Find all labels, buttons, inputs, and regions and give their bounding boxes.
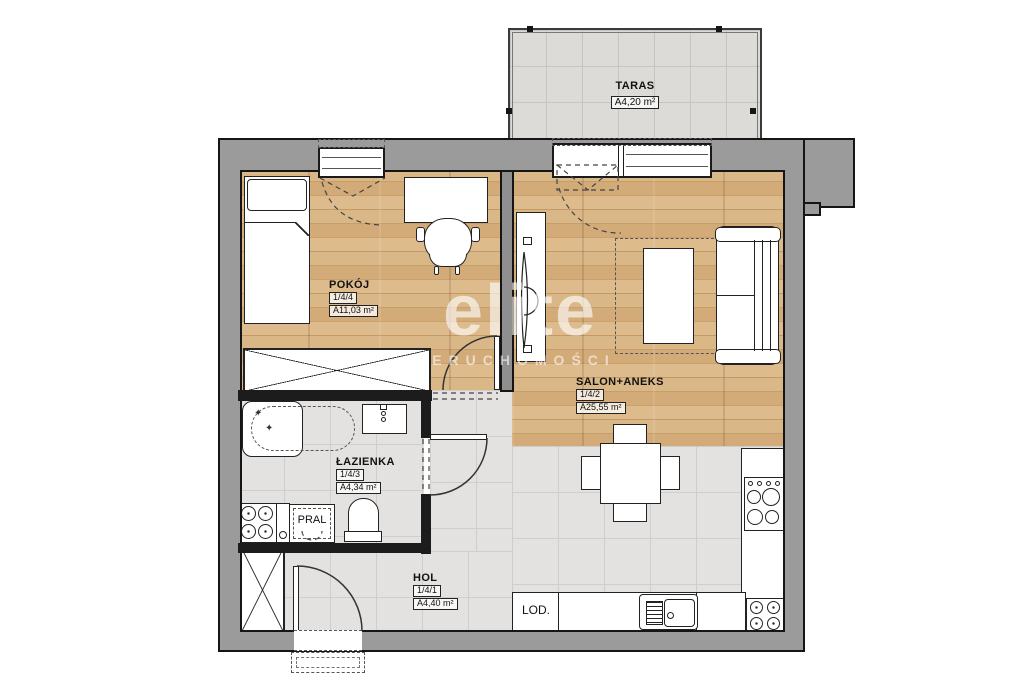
balcony-door-window [552,143,712,178]
pokoj-name: POKÓJ [329,279,378,291]
wall-bathroom-right-upper [421,390,431,438]
salon-unit: 1/4/2 [576,389,604,401]
pokoj-area: A11,03 m² [329,305,378,317]
wall-extension-top-right [801,140,853,206]
balcony-door-sill [552,138,712,146]
railing-post [527,26,533,32]
pokoj-window [318,147,385,178]
pokoj-window-sill [318,139,385,148]
terrace-label: TARAS A4,20 m² [508,80,762,110]
entrance-opening [294,630,362,651]
salon-label: SALON+ANEKS 1/4/2 A25,55 m² [576,376,664,414]
lazienka-unit: 1/4/3 [336,469,364,481]
hol-name: HOL [413,572,458,584]
lazienka-area: A4,34 m² [336,482,381,494]
hol-area: A4,40 m² [413,598,458,610]
lazienka-label: ŁAZIENKA 1/4/3 A4,34 m² [336,456,395,494]
salon-name: SALON+ANEKS [576,376,664,388]
wall-bathroom-bottom [238,543,431,553]
floor-plan: TARAS A4,20 m² [0,0,1024,692]
wall-pokoj-bottom [238,390,432,401]
hol-unit: 1/4/1 [413,585,441,597]
pokoj-unit: 1/4/4 [329,292,357,304]
lazienka-name: ŁAZIENKA [336,456,395,468]
pokoj-door-leaf [494,336,500,390]
terrace-area: A4,20 m² [611,96,660,109]
salon-area: A25,55 m² [576,402,626,414]
wall-pokoj-salon [500,170,514,392]
bathroom-door-leaf [430,434,487,440]
wall-step-right [801,204,819,214]
fridge-label: LOD. [514,603,558,617]
pokoj-label: POKÓJ 1/4/4 A11,03 m² [329,279,378,317]
entrance-mat [291,652,365,673]
terrace-name: TARAS [508,80,762,92]
hol-label: HOL 1/4/1 A4,40 m² [413,572,458,610]
entrance-door-leaf [293,566,299,632]
railing-post [716,26,722,32]
